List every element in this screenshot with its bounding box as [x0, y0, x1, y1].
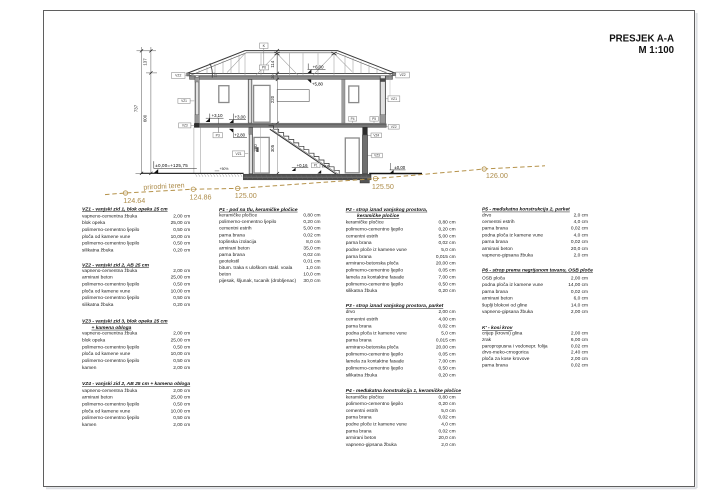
svg-text:vapneno-gipsana žbuka: vapneno-gipsana žbuka	[482, 309, 533, 315]
svg-text:25,00 cm: 25,00 cm	[171, 338, 191, 344]
svg-text:0,20 cm: 0,20 cm	[173, 247, 190, 253]
svg-text:±0,00=+125,75: ±0,00=+125,75	[155, 163, 188, 168]
svg-text:P6: P6	[262, 66, 266, 70]
svg-text:0,80 cm: 0,80 cm	[439, 220, 456, 226]
svg-text:124.86: 124.86	[190, 192, 212, 201]
svg-text:0,50 cm: 0,50 cm	[173, 344, 190, 350]
svg-text:2,00 cm: 2,00 cm	[173, 422, 190, 428]
svg-text:geotekstil: geotekstil	[219, 258, 239, 264]
svg-text:2,00 cm: 2,00 cm	[173, 331, 190, 337]
svg-text:VZ2: VZ2	[175, 74, 181, 78]
svg-text:parna brana: parna brana	[346, 415, 372, 421]
svg-text:silikatna žbuka: silikatna žbuka	[346, 373, 378, 379]
svg-text:5,00 cm: 5,00 cm	[439, 233, 456, 239]
svg-text:124.64: 124.64	[123, 196, 145, 205]
svg-text:pijesak, šljunak, tucanik (dro: pijesak, šljunak, tucanik (drobljenac)	[219, 278, 296, 284]
svg-text:10,0 cm: 10,0 cm	[303, 272, 320, 278]
svg-text:5,0 cm: 5,0 cm	[441, 247, 455, 253]
svg-text:cementni estrih: cementni estrih	[482, 219, 515, 225]
svg-text:0,02 cm: 0,02 cm	[439, 428, 456, 434]
svg-text:šuplji blokovi od gline: šuplji blokovi od gline	[482, 302, 528, 308]
svg-text:280: 280	[253, 144, 258, 152]
svg-text:0,20 cm: 0,20 cm	[439, 401, 456, 407]
svg-text:0,20 cm: 0,20 cm	[173, 302, 190, 308]
svg-text:6,0 cm: 6,0 cm	[574, 296, 588, 302]
svg-text:220: 220	[270, 95, 275, 103]
svg-text:keramičke pločice: keramičke pločice	[346, 394, 384, 400]
svg-text:VZ3: VZ3	[374, 154, 380, 158]
svg-text:0,02 cm: 0,02 cm	[571, 226, 588, 232]
svg-text:14,00 cm: 14,00 cm	[568, 282, 588, 288]
svg-text:7,00 cm: 7,00 cm	[439, 359, 456, 365]
svg-text:20,00 cm: 20,00 cm	[436, 344, 456, 350]
svg-text:0,20 cm: 0,20 cm	[439, 373, 456, 379]
svg-text:armirani beton: armirani beton	[82, 395, 113, 401]
svg-text:0,50 cm: 0,50 cm	[173, 241, 190, 247]
svg-text:crijep (krovni) glina: crijep (krovni) glina	[482, 331, 523, 337]
svg-text:vapneno-gipsana žbuka: vapneno-gipsana žbuka	[482, 253, 533, 259]
svg-text:0,50 cm: 0,50 cm	[439, 281, 456, 287]
svg-text:armirani beton: armirani beton	[482, 296, 513, 302]
svg-text:polimerno-cementno ljepilo: polimerno-cementno ljepilo	[346, 352, 404, 358]
svg-text:polimerno-cementno ljepilo: polimerno-cementno ljepilo	[82, 402, 140, 408]
svg-text:polimerno-cementno ljepilo: polimerno-cementno ljepilo	[346, 401, 404, 407]
svg-text:polimerno-cementno ljepilo: polimerno-cementno ljepilo	[82, 295, 140, 301]
svg-text:+6,00: +6,00	[313, 64, 324, 69]
svg-text:2,00 cm: 2,00 cm	[571, 356, 588, 362]
svg-text:parna brana: parna brana	[346, 240, 372, 246]
svg-text:4,0 cm: 4,0 cm	[574, 219, 588, 225]
svg-text:25,00 cm: 25,00 cm	[171, 395, 191, 401]
svg-text:7,00 cm: 7,00 cm	[439, 274, 456, 280]
svg-text:drvo-meko-crnogorica: drvo-meko-crnogorica	[482, 350, 529, 356]
svg-text:2,00 cm: 2,00 cm	[173, 213, 190, 219]
svg-text:4,00 cm: 4,00 cm	[439, 316, 456, 322]
svg-text:5,0 cm: 5,0 cm	[441, 330, 455, 336]
svg-text:cementni estrih: cementni estrih	[346, 408, 379, 414]
svg-text:VZ3 - vanjski zid 3, blok opek: VZ3 - vanjski zid 3, blok opeka 25 cm	[82, 318, 168, 324]
svg-text:0,50 cm: 0,50 cm	[173, 358, 190, 364]
svg-text:0,80 cm: 0,80 cm	[439, 394, 456, 400]
svg-text:0,02 cm: 0,02 cm	[571, 363, 588, 369]
svg-text:2,40 cm: 2,40 cm	[571, 350, 588, 356]
svg-text:+ kamena obloga: + kamena obloga	[92, 325, 132, 331]
svg-text:4,0 cm: 4,0 cm	[574, 232, 588, 238]
svg-text:+2,80: +2,80	[234, 132, 245, 137]
svg-text:P3 - strop iznad vanjskog pros: P3 - strop iznad vanjskog prostora, park…	[346, 303, 444, 309]
svg-text:0,50 cm: 0,50 cm	[173, 295, 190, 301]
svg-text:6,00 cm: 6,00 cm	[571, 337, 588, 343]
svg-text:zrak: zrak	[482, 337, 492, 343]
svg-text:0,05 cm: 0,05 cm	[439, 268, 456, 274]
svg-text:cementni estrih: cementni estrih	[219, 226, 252, 232]
svg-text:0,02 cm: 0,02 cm	[571, 343, 588, 349]
svg-text:polimerno-cementno ljepilo: polimerno-cementno ljepilo	[82, 227, 140, 233]
svg-text:keramičke pločice: keramičke pločice	[219, 213, 257, 219]
svg-text:blok opeka: blok opeka	[82, 220, 106, 226]
svg-text:0,50 cm: 0,50 cm	[173, 227, 190, 233]
svg-text:VZ4 - vanjski zid 2, AB 25 cm: VZ4 - vanjski zid 2, AB 25 cm + kamena o…	[82, 381, 190, 387]
svg-text:VZ2: VZ2	[391, 125, 397, 129]
svg-text:K' - kosi krov: K' - kosi krov	[482, 325, 513, 331]
svg-text:paropropusna i vodonepr. folij: paropropusna i vodonepr. folija	[482, 343, 548, 349]
svg-text:podne ploče iz kamene vune: podne ploče iz kamene vune	[346, 422, 407, 428]
svg-text:25,00 cm: 25,00 cm	[171, 275, 191, 281]
svg-text:armirani beton: armirani beton	[346, 435, 377, 441]
svg-text:126.00: 126.00	[486, 171, 508, 180]
svg-text:125.50: 125.50	[372, 182, 394, 191]
svg-text:parna brana: parna brana	[482, 363, 508, 369]
svg-text:parna brana: parna brana	[346, 323, 372, 329]
svg-text:125.00: 125.00	[235, 191, 257, 200]
svg-text:armirani beton: armirani beton	[482, 246, 513, 252]
svg-text:silikatna žbuka: silikatna žbuka	[82, 302, 114, 308]
svg-text:PRESJEK A-A: PRESJEK A-A	[609, 34, 674, 45]
svg-text:podna ploča iz kamene vune: podna ploča iz kamene vune	[346, 330, 407, 336]
svg-text:P4: P4	[351, 117, 355, 121]
svg-text:+5,80: +5,80	[312, 81, 324, 86]
svg-text:cementni estrih: cementni estrih	[346, 316, 379, 322]
svg-text:ploča za kose krovove: ploča za kose krovove	[482, 356, 530, 362]
svg-text:20,00 cm: 20,00 cm	[436, 261, 456, 267]
svg-text:305: 305	[270, 144, 275, 152]
svg-text:drvo: drvo	[482, 212, 492, 218]
svg-text:P1: P1	[314, 163, 318, 167]
svg-text:parna brana: parna brana	[219, 252, 245, 258]
svg-text:35,0 cm: 35,0 cm	[303, 245, 320, 251]
svg-text:20,0 cm: 20,0 cm	[439, 435, 456, 441]
svg-text:silikatna žbuka: silikatna žbuka	[82, 247, 114, 253]
svg-text:VZ3: VZ3	[182, 124, 188, 128]
svg-text:podne ploče iz kamene vune: podne ploče iz kamene vune	[346, 247, 407, 253]
svg-text:ploča od kamene vune: ploča od kamene vune	[82, 288, 131, 294]
svg-text:737: 737	[133, 104, 138, 112]
svg-text:M 1:100: M 1:100	[638, 45, 674, 56]
svg-text:keramičke pločice: keramičke pločice	[346, 220, 384, 226]
svg-text:0,01 cm: 0,01 cm	[303, 258, 320, 264]
svg-text:vapneno-cementna žbuka: vapneno-cementna žbuka	[82, 213, 138, 219]
svg-text:parna brana: parna brana	[346, 428, 372, 434]
svg-text:parna brana: parna brana	[482, 226, 508, 232]
svg-text:0,20 cm: 0,20 cm	[303, 219, 320, 225]
svg-text:drvo: drvo	[346, 309, 356, 315]
svg-text:1,0 cm: 1,0 cm	[306, 265, 320, 271]
svg-text:+3,00: +3,00	[235, 115, 246, 120]
svg-text:silikatna žbuka: silikatna žbuka	[346, 288, 378, 294]
svg-text:2,00 cm: 2,00 cm	[571, 331, 588, 337]
svg-text:parna brana: parna brana	[482, 289, 508, 295]
svg-text:600: 600	[142, 114, 147, 122]
svg-text:2,00 cm: 2,00 cm	[173, 268, 190, 274]
svg-text:bitum. traka s uloškom stakl.: bitum. traka s uloškom stakl. voala	[219, 265, 293, 271]
svg-text:polimerno-cementno ljepilo: polimerno-cementno ljepilo	[82, 415, 140, 421]
svg-text:137: 137	[142, 58, 147, 66]
svg-text:0,50 cm: 0,50 cm	[439, 366, 456, 372]
svg-text:keramičke pločice: keramičke pločice	[357, 213, 399, 219]
svg-text:±0,0: ±0,0	[322, 164, 329, 168]
svg-text:2,0 cm: 2,0 cm	[574, 253, 588, 259]
svg-text:VZ1: VZ1	[235, 152, 241, 156]
svg-text:14,0 cm: 14,0 cm	[571, 302, 588, 308]
svg-text:P5 - međukatna konstrukcija 2: P5 - međukatna konstrukcija 2, parket	[482, 207, 570, 213]
svg-text:10,00 cm: 10,00 cm	[171, 288, 191, 294]
svg-text:toplinska izolacija: toplinska izolacija	[219, 239, 257, 245]
svg-text:ploča od kamene vune: ploča od kamene vune	[82, 234, 131, 240]
svg-text:0,80 cm: 0,80 cm	[303, 213, 320, 219]
svg-text:0,02 cm: 0,02 cm	[571, 289, 588, 295]
svg-text:4,0 cm: 4,0 cm	[441, 422, 455, 428]
svg-text:armirano-betonska ploča: armirano-betonska ploča	[346, 261, 399, 267]
svg-text:polimerno-cementno ljepilo: polimerno-cementno ljepilo	[82, 358, 140, 364]
svg-text:0,02 cm: 0,02 cm	[571, 239, 588, 245]
svg-text:2,00 cm: 2,00 cm	[173, 365, 190, 371]
svg-text:armirani beton: armirani beton	[82, 275, 113, 281]
svg-text:polimerno-cementno ljepilo: polimerno-cementno ljepilo	[346, 366, 404, 372]
svg-text:VZ4: VZ4	[373, 133, 379, 137]
svg-text:10,00 cm: 10,00 cm	[171, 351, 191, 357]
svg-text:0,50 cm: 0,50 cm	[173, 282, 190, 288]
svg-text:VZ1: VZ1	[181, 99, 187, 103]
svg-text:0,02 cm: 0,02 cm	[303, 252, 320, 258]
svg-text:kamen: kamen	[82, 422, 97, 428]
svg-text:parna brana: parna brana	[346, 254, 372, 260]
svg-text:lamela za kontaktne fasade: lamela za kontaktne fasade	[346, 359, 405, 365]
svg-text:OSB ploča: OSB ploča	[482, 275, 505, 281]
svg-text:polimerno-cementno ljepilo: polimerno-cementno ljepilo	[346, 226, 404, 232]
svg-text:+3,10: +3,10	[212, 113, 223, 118]
svg-text:P3: P3	[216, 133, 220, 137]
svg-text:0,02 cm: 0,02 cm	[439, 323, 456, 329]
svg-text:10,00 cm: 10,00 cm	[171, 234, 191, 240]
svg-text:8,0 cm: 8,0 cm	[306, 239, 320, 245]
svg-text:vapneno-cementna žbuka: vapneno-cementna žbuka	[82, 268, 138, 274]
svg-text:parna brana: parna brana	[482, 239, 508, 245]
svg-text:5,0 cm: 5,0 cm	[441, 408, 455, 414]
svg-text:kamen: kamen	[82, 365, 97, 371]
svg-text:vapneno-cementna žbuka: vapneno-cementna žbuka	[82, 331, 138, 337]
svg-text:0,015 cm: 0,015 cm	[436, 254, 456, 260]
svg-text:podna ploča iz kamene vune: podna ploča iz kamene vune	[482, 282, 543, 288]
svg-text:±0,00: ±0,00	[394, 165, 405, 170]
svg-text:ploča od kamene vune: ploča od kamene vune	[82, 351, 131, 357]
svg-text:25,00 cm: 25,00 cm	[171, 220, 191, 226]
svg-text:beton: beton	[219, 272, 231, 278]
svg-text:2,00 cm: 2,00 cm	[571, 275, 588, 281]
svg-text:P5: P5	[372, 117, 376, 121]
svg-text:VZ1 - vanjski zid 1, blok opek: VZ1 - vanjski zid 1, blok opeka 25 cm	[82, 207, 168, 213]
svg-text:blok opeka: blok opeka	[82, 338, 106, 344]
svg-text:vapneno-gipsana žbuka: vapneno-gipsana žbuka	[346, 442, 397, 448]
svg-text:114: 114	[270, 60, 275, 68]
svg-text:20,0 cm: 20,0 cm	[571, 246, 588, 252]
svg-text:polimerno-cementno ljepilo: polimerno-cementno ljepilo	[82, 241, 140, 247]
svg-text:P2 - strop iznad vanjskog pros: P2 - strop iznad vanjskog prostora,	[346, 207, 428, 213]
svg-text:2,0 cm: 2,0 cm	[441, 442, 455, 448]
svg-text:ploča od kamene vune: ploča od kamene vune	[82, 408, 131, 414]
svg-text:0,50 cm: 0,50 cm	[173, 415, 190, 421]
svg-text:parna brana: parna brana	[346, 337, 372, 343]
svg-text:VZ2 - vanjski zid 2, AB 25 cm: VZ2 - vanjski zid 2, AB 25 cm	[82, 262, 150, 268]
svg-text:0,02 cm: 0,02 cm	[439, 240, 456, 246]
svg-text:polimerno-cementno ljepilo: polimerno-cementno ljepilo	[82, 344, 140, 350]
svg-text:armirano-betonska ploča: armirano-betonska ploča	[346, 344, 399, 350]
svg-text:vapneno-cementna žbuka: vapneno-cementna žbuka	[82, 388, 138, 394]
svg-text:+0,16: +0,16	[297, 163, 308, 168]
svg-text:22°: 22°	[213, 72, 217, 78]
svg-text:polimerno-cementno ljepilo: polimerno-cementno ljepilo	[219, 219, 277, 225]
svg-text:VZ1: VZ1	[391, 97, 397, 101]
svg-text:armirani beton: armirani beton	[219, 245, 250, 251]
svg-text:2,0 cm: 2,0 cm	[574, 212, 588, 218]
svg-text:0,05 cm: 0,05 cm	[439, 352, 456, 358]
svg-text:+50%: +50%	[220, 167, 229, 171]
svg-text:polimerno-cementno ljepilo: polimerno-cementno ljepilo	[346, 281, 404, 287]
svg-text:0,015 cm: 0,015 cm	[436, 337, 456, 343]
svg-text:polimerno-cementno ljepilo: polimerno-cementno ljepilo	[346, 268, 404, 274]
svg-text:30,0 cm: 30,0 cm	[303, 278, 320, 284]
svg-text:2,00 cm: 2,00 cm	[173, 388, 190, 394]
svg-text:P4 - međukatna konstrukcija 1,: P4 - međukatna konstrukcija 1, keramičke…	[346, 388, 462, 394]
svg-text:2,00 cm: 2,00 cm	[571, 309, 588, 315]
svg-text:polimerno-cementno ljepilo: polimerno-cementno ljepilo	[82, 282, 140, 288]
svg-text:0,50 cm: 0,50 cm	[173, 402, 190, 408]
svg-text:5,00 cm: 5,00 cm	[303, 226, 320, 232]
svg-text:P6 - strop prema negrijanom ta: P6 - strop prema negrijanom tavanu, OSB …	[482, 267, 593, 273]
svg-text:lamela za kontaktne fasade: lamela za kontaktne fasade	[346, 274, 405, 280]
svg-text:2,00 cm: 2,00 cm	[439, 309, 456, 315]
svg-text:parna brana: parna brana	[219, 232, 245, 238]
svg-text:0,20 cm: 0,20 cm	[439, 288, 456, 294]
svg-text:0,02 cm: 0,02 cm	[439, 415, 456, 421]
svg-text:cementni estrih: cementni estrih	[346, 233, 379, 239]
svg-text:10,00 cm: 10,00 cm	[171, 408, 191, 414]
svg-text:podna ploča iz kamene vune: podna ploča iz kamene vune	[482, 232, 543, 238]
svg-text:0,02 cm: 0,02 cm	[303, 232, 320, 238]
svg-text:P1 - pod na tlu, keramičke plo: P1 - pod na tlu, keramičke pločice	[219, 207, 298, 213]
svg-text:0,20 cm: 0,20 cm	[439, 226, 456, 232]
svg-text:VZ2: VZ2	[399, 73, 405, 77]
